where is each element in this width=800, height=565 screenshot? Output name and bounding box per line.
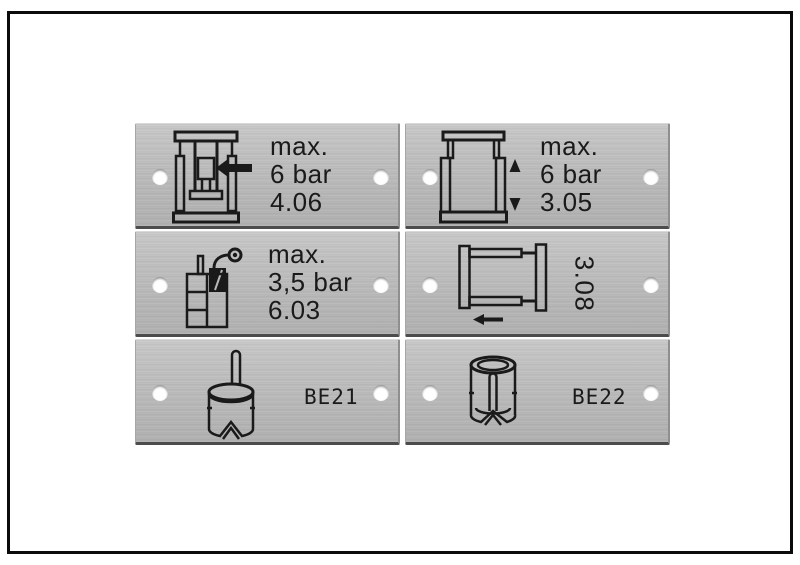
spec-line: 6.03 <box>268 296 352 324</box>
plate-toggle-press: max. 6 bar 4.06 <box>135 123 400 229</box>
plate-slide-frame: 3.08 <box>405 231 670 337</box>
toggle-press-icon <box>172 130 256 224</box>
mounting-hole <box>643 277 659 293</box>
plate-be21: BE21 <box>135 339 400 445</box>
spec-line: 3.05 <box>540 188 602 216</box>
mounting-hole <box>643 385 659 401</box>
spec-line: 4.06 <box>270 188 332 216</box>
pressure-spec: max. 6 bar 4.06 <box>270 132 332 216</box>
mounting-hole <box>373 169 389 185</box>
cylinder-pin-icon <box>207 349 261 447</box>
mounting-hole <box>373 277 389 293</box>
spec-line: max. <box>268 240 352 268</box>
spec-line: 6 bar <box>540 160 602 188</box>
mounting-hole <box>422 169 438 185</box>
plate-be22: BE22 <box>405 339 670 445</box>
mounting-hole <box>422 277 438 293</box>
spec-line: max. <box>270 132 332 160</box>
mounting-hole <box>422 385 438 401</box>
catalog-photo: max. 6 bar 4.06 <box>0 0 800 565</box>
mounting-hole <box>152 385 168 401</box>
mounting-hole <box>643 169 659 185</box>
type-code: BE21 <box>304 385 359 409</box>
lubricator-spray-icon <box>185 246 247 330</box>
pressure-spec: max. 3,5 bar 6.03 <box>268 240 352 324</box>
photo-border-frame: max. 6 bar 4.06 <box>7 11 793 554</box>
spec-line: max. <box>540 132 602 160</box>
plate-lift-frame: max. 6 bar 3.05 <box>405 123 670 229</box>
type-code: BE22 <box>572 385 627 409</box>
mounting-hole <box>152 277 168 293</box>
pressure-spec: max. 6 bar 3.05 <box>540 132 602 216</box>
slide-frame-arrow-icon <box>458 243 550 327</box>
spec-line: 6 bar <box>270 160 332 188</box>
mounting-hole <box>152 169 168 185</box>
lift-frame-icon <box>439 130 521 224</box>
position-code-rotated: 3.08 <box>569 256 600 313</box>
mounting-hole <box>373 385 389 401</box>
cylinder-sleeve-icon <box>469 355 521 437</box>
spec-line: 3,5 bar <box>268 268 352 296</box>
plate-lubricator: max. 3,5 bar 6.03 <box>135 231 400 337</box>
